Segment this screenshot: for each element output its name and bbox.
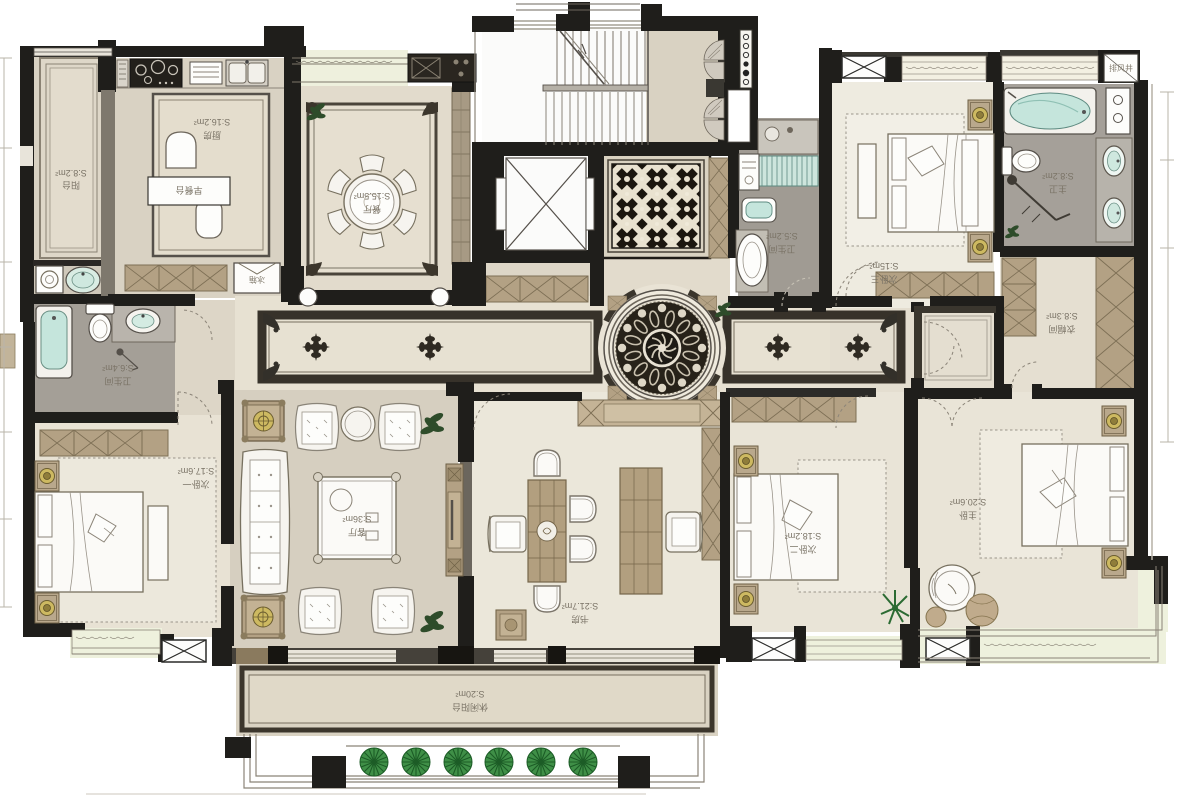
svg-text:S:8.3m²: S:8.3m² bbox=[1046, 311, 1078, 321]
svg-text:休闲阳台: 休闲阳台 bbox=[452, 702, 488, 713]
svg-text:S:18.2m²: S:18.2m² bbox=[785, 531, 822, 541]
svg-text:S:36m²: S:36m² bbox=[342, 514, 371, 524]
svg-text:主卧: 主卧 bbox=[959, 510, 977, 521]
svg-text:S:15.5m²: S:15.5m² bbox=[354, 191, 391, 201]
svg-text:S:20m²: S:20m² bbox=[455, 689, 484, 699]
svg-text:S:8.2m²: S:8.2m² bbox=[55, 168, 87, 178]
svg-text:餐厅: 餐厅 bbox=[363, 204, 381, 215]
svg-text:客厅: 客厅 bbox=[348, 527, 366, 538]
svg-text:S:5.2m²: S:5.2m² bbox=[766, 231, 798, 241]
svg-text:S:21.7m²: S:21.7m² bbox=[562, 601, 599, 611]
svg-text:S:16.2m²: S:16.2m² bbox=[194, 117, 231, 127]
svg-text:次卧三: 次卧三 bbox=[870, 274, 897, 285]
svg-text:排风井: 排风井 bbox=[1109, 63, 1133, 73]
svg-text:主卫: 主卫 bbox=[1049, 184, 1067, 195]
svg-text:S:6.4m²: S:6.4m² bbox=[102, 363, 134, 373]
svg-text:卫生间: 卫生间 bbox=[104, 376, 131, 387]
svg-text:冰箱: 冰箱 bbox=[249, 275, 265, 285]
svg-text:S:17.6m²: S:17.6m² bbox=[178, 466, 215, 476]
svg-text:次卧二: 次卧二 bbox=[789, 544, 816, 555]
svg-text:次卧一: 次卧一 bbox=[182, 479, 209, 490]
svg-text:衣帽间: 衣帽间 bbox=[1048, 324, 1075, 335]
svg-text:厨房: 厨房 bbox=[203, 130, 221, 141]
svg-text:S:20.6m²: S:20.6m² bbox=[950, 497, 987, 507]
svg-text:S:8.2m²: S:8.2m² bbox=[1042, 171, 1074, 181]
svg-text:阳台: 阳台 bbox=[62, 180, 80, 191]
svg-text:书房: 书房 bbox=[571, 614, 589, 625]
svg-text:早餐台: 早餐台 bbox=[175, 185, 202, 196]
svg-text:S:15m²: S:15m² bbox=[869, 261, 898, 271]
svg-text:卫生间: 卫生间 bbox=[768, 244, 795, 255]
